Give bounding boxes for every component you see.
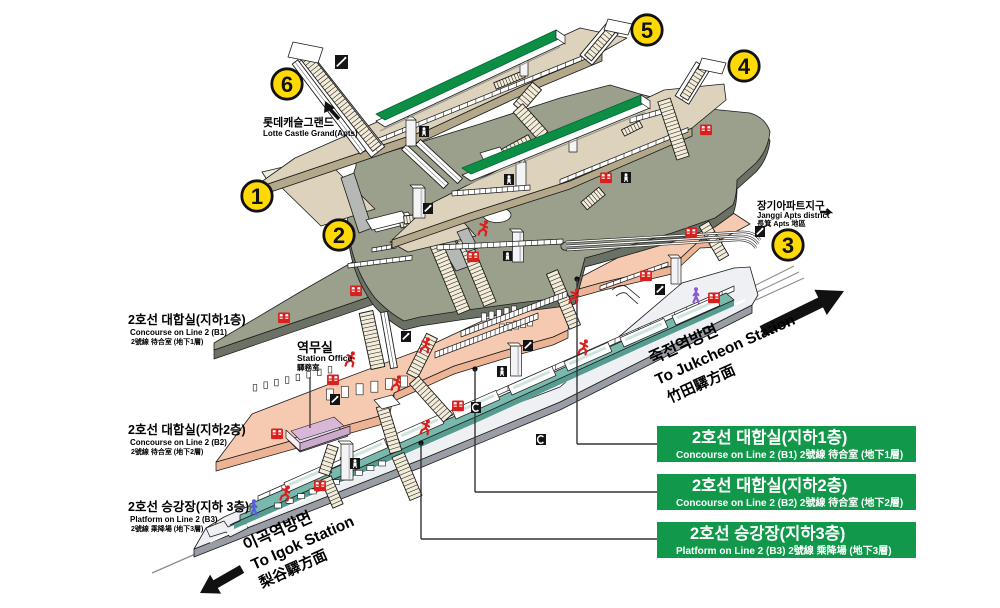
svg-text:3: 3 xyxy=(782,233,794,258)
svg-text:2호선 승강장(지하 3층): 2호선 승강장(지하 3층) xyxy=(128,499,249,514)
svg-text:2호선 대합실(지하2층): 2호선 대합실(지하2층) xyxy=(128,422,246,437)
svg-text:Platform on Line 2 (B3): Platform on Line 2 (B3) xyxy=(130,515,218,524)
svg-text:2호선 대합실(지하2층): 2호선 대합실(지하2층) xyxy=(692,475,847,495)
svg-text:롯데캐슬그랜드: 롯데캐슬그랜드 xyxy=(263,115,334,129)
svg-text:1: 1 xyxy=(251,184,263,209)
svg-text:Station Office: Station Office xyxy=(297,353,353,363)
svg-text:4: 4 xyxy=(738,54,751,79)
svg-text:2號線 待合室 (地下2層): 2號線 待合室 (地下2層) xyxy=(131,447,203,456)
svg-text:2: 2 xyxy=(333,223,345,248)
svg-text:5: 5 xyxy=(641,18,653,43)
svg-text:2호선 대합실(지하1층): 2호선 대합실(지하1층) xyxy=(128,312,246,327)
svg-text:Concourse on Line 2 (B2): Concourse on Line 2 (B2) xyxy=(130,438,227,447)
svg-text:2號線 乘降場 (地下3層): 2號線 乘降場 (地下3層) xyxy=(131,524,203,533)
svg-text:長箕 Apts 地區: 長箕 Apts 地區 xyxy=(757,219,806,228)
svg-text:Concourse on Line 2 (B1): Concourse on Line 2 (B1) xyxy=(130,328,227,337)
svg-text:驛務室: 驛務室 xyxy=(297,362,320,372)
svg-text:Concourse on Line 2 (B1) 2號線 待: Concourse on Line 2 (B1) 2號線 待合室 (地下1層) xyxy=(676,448,903,461)
svg-text:2號線 待合室 (地下1層): 2號線 待合室 (地下1層) xyxy=(131,337,203,346)
svg-text:2호선 대합실(지하1층): 2호선 대합실(지하1층) xyxy=(692,427,847,447)
svg-text:Concourse on Line 2 (B2) 2號線 待: Concourse on Line 2 (B2) 2號線 待合室 (地下2層) xyxy=(676,496,903,509)
svg-text:6: 6 xyxy=(281,72,293,97)
svg-text:Platform on Line 2 (B3) 2號線 乘降: Platform on Line 2 (B3) 2號線 乘降場 (地下3層) xyxy=(676,544,892,557)
svg-text:Lotte Castle Grand(Apts): Lotte Castle Grand(Apts) xyxy=(263,129,358,138)
svg-text:2호선 승강장(지하3층): 2호선 승강장(지하3층) xyxy=(690,524,845,543)
